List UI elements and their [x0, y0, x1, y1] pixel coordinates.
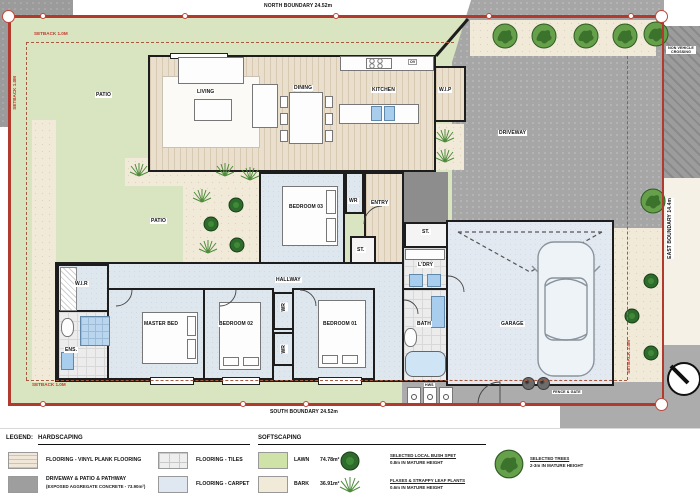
- legend-panel: LEGEND: HARDSCAPING FLOORING - VINYL PLA…: [0, 428, 700, 500]
- north-boundary-label: NORTH BOUNDARY 24.52m: [263, 3, 333, 9]
- wr-bed3-label: WR: [348, 198, 359, 204]
- driveway-legend-name: DRIVEWAY & PATIO & PATHWAY: [46, 476, 126, 482]
- ensuite-label: ENS.: [64, 347, 78, 353]
- driveway-legend-desc: (EXPOSED AGGREGATE CONCRETE - 73.90m²): [46, 484, 145, 489]
- flax-icon: [240, 166, 260, 182]
- boundary-peg-corner: [655, 10, 668, 23]
- bush-icon: [228, 197, 244, 213]
- bush-sub: 0.8m IN MATURE HEIGHT: [390, 460, 443, 465]
- swatch-bark: [258, 476, 288, 493]
- laundry-label: L'DRY: [417, 262, 434, 268]
- vinyl-label: FLOORING - VINYL PLANK FLOORING: [46, 457, 141, 463]
- tree-icon: [531, 23, 557, 49]
- oven-label: OV: [408, 59, 417, 65]
- flax-title: FLAXES & STRAPPY LEAF PLANTS: [390, 478, 465, 483]
- bush-legend-icon: [340, 451, 360, 471]
- entry-label: ENTRY: [370, 200, 389, 206]
- hallway-label: HALLWAY: [275, 277, 302, 283]
- garage-label: GARAGE: [500, 321, 525, 327]
- wr-hall-1-label: WR: [280, 303, 288, 312]
- hardscaping-heading: HARDSCAPING: [38, 435, 83, 441]
- setback-bottom-label: SETBACK 1.0M: [32, 382, 66, 387]
- wir-label: W.I.R: [74, 281, 89, 287]
- softscaping-heading: SOFTSCAPING: [258, 435, 301, 441]
- dining-label: DINING: [293, 85, 313, 91]
- tree-legend-icon: [494, 449, 524, 479]
- boundary-peg-corner: [2, 10, 15, 23]
- setback-line-left: [26, 42, 27, 380]
- boundary-west: [8, 15, 11, 405]
- non-vehicle-crossing-label: NON VEHICLE CROSSING: [666, 46, 696, 54]
- north-arrow: [668, 363, 700, 395]
- swatch-tiles: [158, 452, 188, 469]
- carpet-label: FLOORING - CARPET: [196, 481, 249, 487]
- softscaping-rule: [258, 444, 486, 445]
- boundary-peg-corner: [655, 398, 668, 411]
- swatch-driveway: [8, 476, 38, 493]
- lawn-name: LAWN: [294, 457, 309, 463]
- bush-icon: [643, 345, 659, 361]
- vinyl-desc: - VINYL PLANK FLOORING: [75, 457, 141, 463]
- bath-label: BATH: [416, 321, 432, 327]
- hws-label: HWS: [424, 383, 435, 387]
- site-plan-drawing: NORTH BOUNDARY 24.52m SOUTH BOUNDARY 24.…: [0, 0, 700, 500]
- boundary-east: [662, 15, 665, 405]
- store1-label: ST.: [421, 229, 431, 235]
- living-label: LIVING: [196, 89, 215, 95]
- bark-name: BARK: [294, 481, 309, 487]
- flax-legend-icon: [339, 476, 361, 494]
- swatch-lawn: [258, 452, 288, 469]
- bush-title: SELECTED LOCAL BUSH SPET: [390, 453, 456, 458]
- kitchen-label: KITCHEN: [371, 87, 396, 93]
- setback-line-bottom: [26, 380, 627, 381]
- bush-icon: [643, 273, 659, 289]
- patio-upper-label: PATIO: [95, 92, 112, 98]
- boundary-peg: [520, 401, 526, 407]
- plan-linework: [0, 0, 700, 430]
- setback-line-top: [26, 42, 454, 43]
- hardscaping-rule: [38, 444, 250, 445]
- setback-top-label: SETBACK 1.0M: [34, 31, 68, 36]
- setback-right-label: SETBACK 1.0M: [626, 340, 631, 374]
- boundary-peg: [303, 401, 309, 407]
- wip-label: W.I.P: [438, 87, 452, 93]
- flax-icon: [129, 162, 149, 178]
- boundary-south: [8, 403, 664, 406]
- flax-icon: [215, 162, 235, 178]
- setback-line-right: [627, 56, 628, 380]
- vinyl-name: FLOORING: [46, 457, 73, 463]
- boundary-peg: [240, 401, 246, 407]
- boundary-peg: [486, 13, 492, 19]
- flax-sub: 0.6m IN MATURE HEIGHT: [390, 485, 443, 490]
- flax-icon: [192, 188, 212, 204]
- boundary-peg: [333, 13, 339, 19]
- bush-icon: [203, 216, 219, 232]
- boundary-peg: [628, 13, 634, 19]
- tree-sub: 2-3m IN MATURE HEIGHT: [530, 463, 583, 468]
- swatch-vinyl: [8, 452, 38, 469]
- east-boundary-label: EAST BOUNDARY 14.4m: [666, 198, 674, 259]
- flax-icon: [435, 128, 455, 144]
- bedroom2-label: BEDROOM 02: [218, 321, 254, 327]
- tree-icon: [612, 23, 638, 49]
- setback-left-label: SETBACK 1.0M: [12, 76, 17, 110]
- flax-icon: [198, 239, 218, 255]
- boundary-peg: [182, 13, 188, 19]
- tree-icon: [492, 23, 518, 49]
- bush-icon: [229, 237, 245, 253]
- tiles-label: FLOORING - TILES: [196, 457, 243, 463]
- boundary-peg: [380, 401, 386, 407]
- bedroom1-label: BEDROOM 01: [322, 321, 358, 327]
- south-boundary-label: SOUTH BOUNDARY 24.52m: [269, 409, 339, 415]
- bark-area: 36.91m²: [320, 481, 339, 487]
- wr-hall-2-label: WR: [280, 345, 288, 354]
- driveway-label: DRIVEWAY: [498, 130, 527, 136]
- flax-icon: [435, 148, 455, 164]
- boundary-peg: [40, 13, 46, 19]
- store2-label: ST.: [356, 247, 366, 253]
- bedroom3-label: BEDROOM 03: [288, 204, 324, 210]
- tree-title: SELECTED TREES: [530, 456, 569, 461]
- boundary-peg: [40, 401, 46, 407]
- tree-icon: [573, 23, 599, 49]
- lawn-area: 74.78m²: [320, 457, 339, 463]
- fence-gate-label: FENCE & GATE: [552, 390, 582, 394]
- tree-icon: [643, 21, 669, 47]
- master-label: MASTER BED: [143, 321, 179, 327]
- swatch-carpet: [158, 476, 188, 493]
- patio-lower-label: PATIO: [150, 218, 167, 224]
- legend-title: LEGEND:: [6, 435, 33, 441]
